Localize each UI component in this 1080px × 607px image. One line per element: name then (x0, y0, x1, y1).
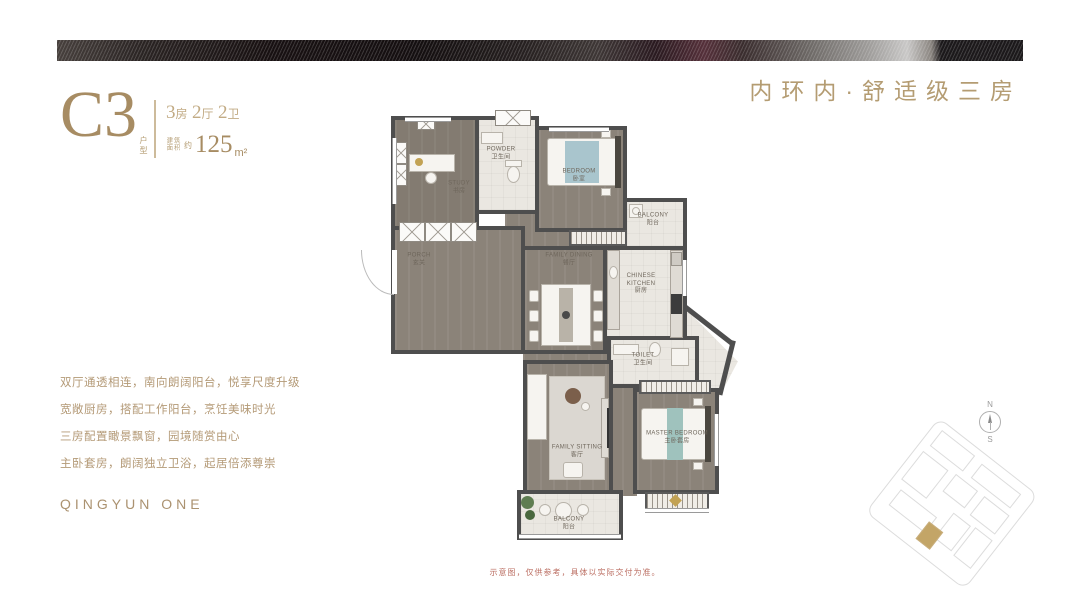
dining-chair (593, 330, 603, 342)
room-label-bedroom: BEDROOM卧室 (562, 169, 595, 184)
brand-logo: QINGYUN ONE (60, 496, 204, 512)
vanity (481, 132, 503, 144)
fridge (671, 252, 682, 266)
dining-chair (593, 290, 603, 302)
dining-chair (529, 310, 539, 322)
feature-list: 双厅通透相连，南向朗阔阳台，悦享尺度升级 宽敞厨房，搭配工作阳台，烹饪美味时光 … (60, 370, 300, 478)
window (549, 127, 609, 132)
dining-chair (593, 310, 603, 322)
room-porch (391, 226, 525, 354)
entry-door-arc (361, 250, 394, 295)
patio-chair (539, 504, 551, 516)
window (682, 260, 687, 296)
shower (671, 348, 689, 366)
dining-chair (529, 290, 539, 302)
armchair (563, 462, 583, 478)
nightstand (601, 188, 611, 196)
rooms-count: 3 (166, 102, 176, 123)
baths-count: 2 (218, 102, 228, 123)
nightstand (693, 462, 703, 470)
dining-chair (529, 330, 539, 342)
unit-area: 建筑面积 约 125 m² (166, 131, 247, 159)
room-label-kitchen: CHINESE KITCHEN厨房 (623, 273, 659, 296)
compass-north-label: N (968, 400, 1012, 409)
desk-chair (425, 172, 437, 184)
shoe-cabinet (399, 222, 425, 242)
decorative-stripe-banner (57, 40, 1023, 61)
area-caption: 建筑面积 (167, 138, 181, 152)
room-label-powder: POWDER卫生间 (487, 147, 516, 162)
feature-line: 宽敞厨房，搭配工作阳台，烹饪美味时光 (60, 397, 300, 424)
area-approx: 约 (184, 140, 192, 151)
desk-lamp (415, 158, 423, 166)
compass-icon (979, 411, 1001, 433)
tv-screen (607, 408, 609, 448)
room-label-balcony: BALCONY阳台 (554, 517, 585, 532)
feature-line: 双厅通透相连，南向朗阔阳台，悦享尺度升级 (60, 370, 300, 397)
divider-line (154, 100, 156, 158)
feature-line: 主卧套房，朗阔独立卫浴，起居倍添尊崇 (60, 451, 300, 478)
stove (671, 294, 682, 314)
plant (525, 510, 535, 520)
wardrobe (639, 380, 711, 394)
sink (609, 266, 618, 279)
toilet-fixture (507, 166, 520, 183)
window (519, 534, 621, 539)
bay-window (645, 508, 709, 513)
pendant-light (562, 311, 570, 319)
window (392, 138, 397, 204)
plant (521, 496, 534, 509)
room-label-dining: FAMILY DINING餐厅 (545, 253, 592, 268)
headboard (615, 136, 621, 188)
room-label-master: MASTER BEDROOM主卧套房 (646, 431, 708, 446)
side-table (581, 402, 590, 411)
room-label-work-balcony: BALCONY阳台 (638, 213, 669, 228)
floorplan-marketing-page: 内环内·舒适级三房 C3 户型 3房 2厅 2卫 建筑面积 约 125 m² 双… (0, 0, 1080, 607)
area-value: 125 (195, 131, 233, 159)
patio-chair (577, 504, 589, 516)
tagline: 内环内·舒适级三房 (749, 72, 1022, 106)
coffee-table (565, 388, 581, 404)
feature-line: 三房配置瞰景飘窗，园境随赏由心 (60, 424, 300, 451)
room-label-study: STUDY书房 (448, 181, 470, 196)
kitchen-counter (607, 250, 620, 330)
area-unit: m² (235, 147, 248, 159)
room-label-living: FAMILY SITTING客厅 (552, 445, 602, 460)
room-label-porch: PORCH玄关 (407, 253, 430, 268)
window (714, 414, 719, 466)
unit-code: C3 (60, 80, 137, 150)
window (405, 117, 451, 122)
unit-code-suffix: 户型 (138, 136, 149, 156)
nightstand (693, 398, 703, 406)
shoe-cabinet (425, 222, 451, 242)
sofa (527, 374, 547, 440)
unit-layout: 3房 2厅 2卫 (166, 102, 239, 124)
ac-platform (495, 110, 531, 126)
room-label-toilet: TOILET卫生间 (632, 353, 655, 368)
wardrobe (569, 230, 627, 246)
shoe-cabinet (451, 222, 477, 242)
site-plan-thumbnail (880, 438, 1040, 588)
floor-plan: STUDY书房 POWDER卫生间 BEDROOM卧室 BALCONY阳台 CH… (355, 108, 747, 550)
